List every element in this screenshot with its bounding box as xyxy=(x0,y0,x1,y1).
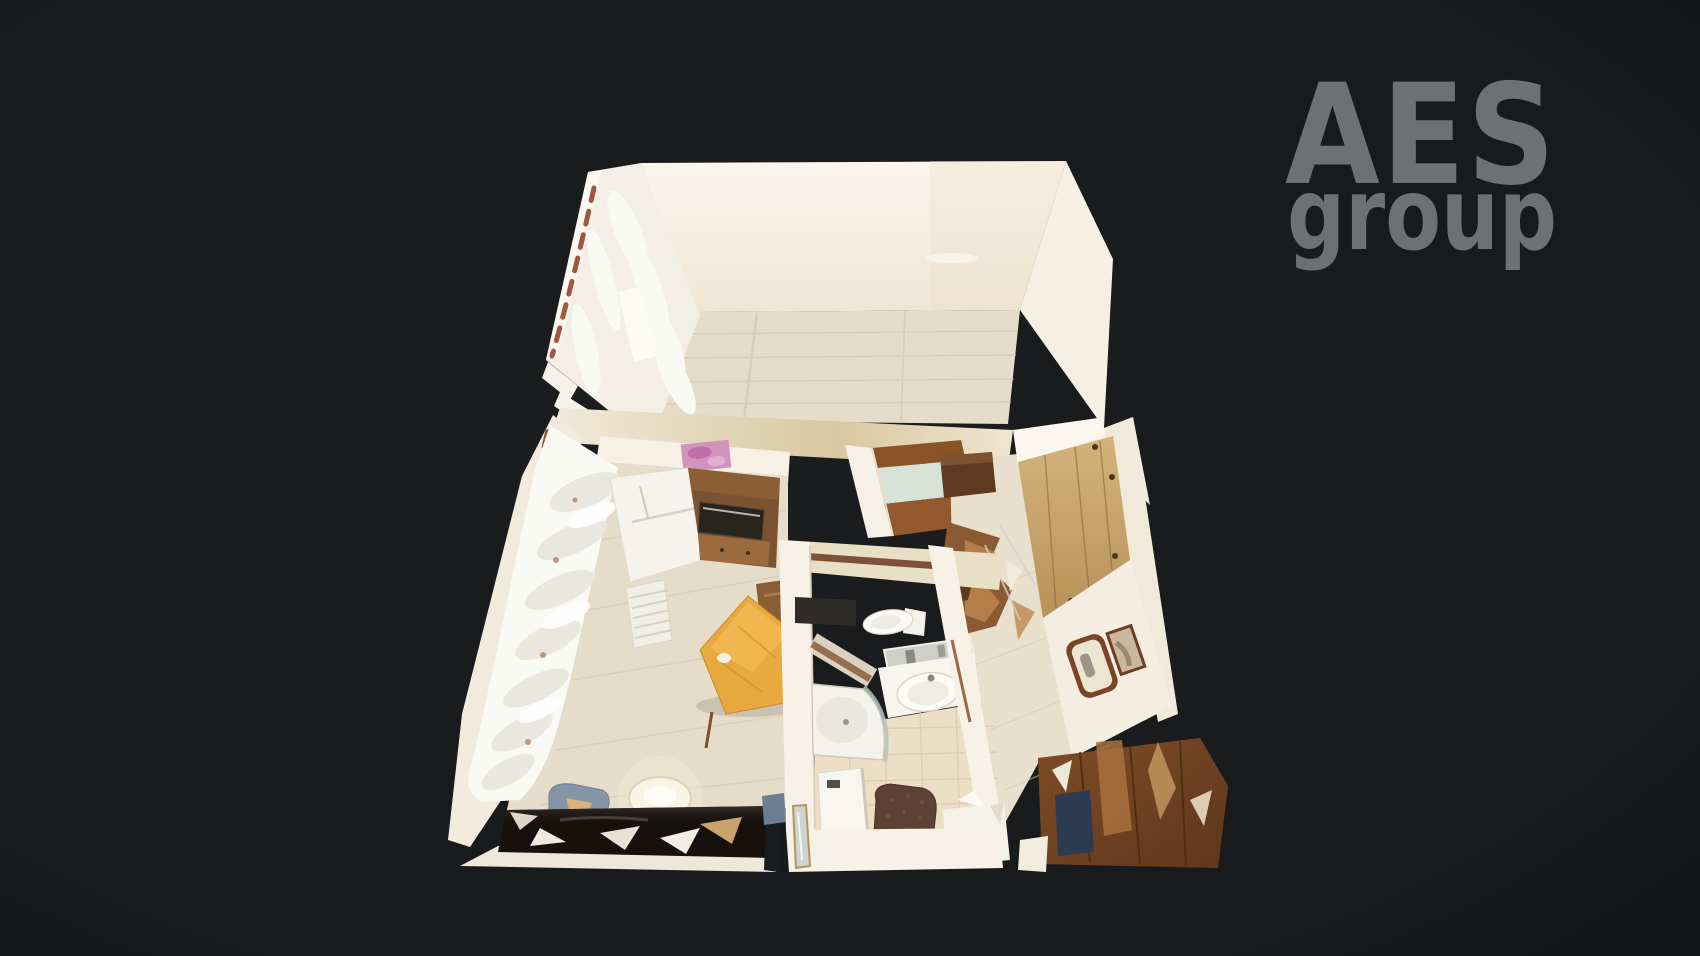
brand-text-secondary: group xyxy=(1287,156,1557,273)
faucet xyxy=(928,675,935,682)
radiator xyxy=(626,580,672,648)
blue-towel xyxy=(762,793,786,825)
kitchen-cabinet xyxy=(688,468,780,568)
dark-desk xyxy=(498,806,774,858)
hallway-bottom-rim xyxy=(1018,836,1048,872)
dollhouse-3d-canvas[interactable]: AES group xyxy=(0,0,1700,956)
dark-counter xyxy=(795,597,856,626)
desk-hole xyxy=(717,653,731,663)
doormat xyxy=(1055,790,1094,856)
wall-mark xyxy=(926,253,978,263)
shower-drain xyxy=(843,719,849,725)
virtual-tour-window: AES group xyxy=(0,0,1700,956)
brand-watermark: AES group xyxy=(1285,54,1557,273)
